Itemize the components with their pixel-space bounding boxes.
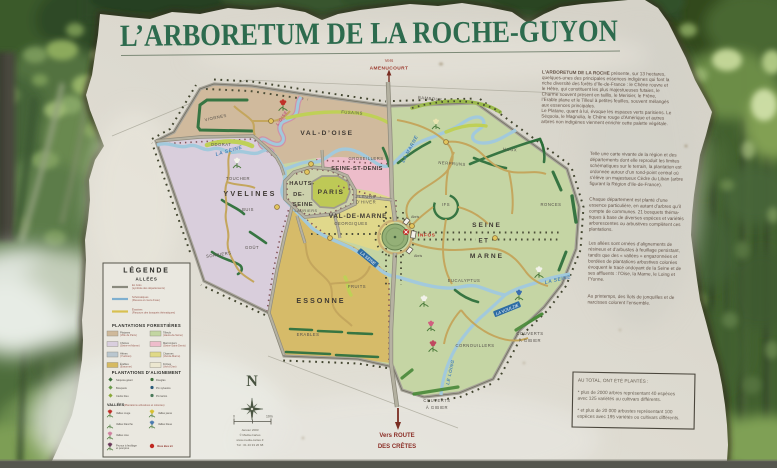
svg-text:Abris: Abris bbox=[414, 254, 422, 258]
svg-text:INFOS: INFOS bbox=[418, 233, 436, 238]
svg-text:GROSEILLERS: GROSEILLERS bbox=[348, 156, 383, 161]
svg-text:5: 5 bbox=[251, 415, 253, 419]
svg-text:Vallée bleue: Vallée bleue bbox=[158, 422, 173, 426]
svg-text:(symbole des départements): (symbole des départements) bbox=[132, 286, 165, 290]
svg-text:ALLÉES: ALLÉES bbox=[135, 277, 157, 282]
svg-text:À GIBIER: À GIBIER bbox=[519, 338, 541, 343]
svg-text:ESSONNE: ESSONNE bbox=[296, 296, 345, 305]
svg-text:Vers: Vers bbox=[385, 58, 393, 63]
svg-text:www.media-cartes.fr: www.media-cartes.fr bbox=[236, 438, 263, 442]
svg-text:(Fleuves et cours d’eau): (Fleuves et cours d’eau) bbox=[132, 298, 160, 302]
svg-text:LÉGENDE: LÉGENDE bbox=[123, 266, 169, 275]
svg-text:SEINE: SEINE bbox=[472, 222, 502, 229]
svg-text:SEINE-ST-DENIS: SEINE-ST-DENIS bbox=[331, 166, 383, 172]
svg-text:GEORGIQUES: GEORGIQUES bbox=[334, 221, 368, 226]
svg-text:10m: 10m bbox=[266, 415, 273, 419]
svg-text:Cèdre bleu: Cèdre bleu bbox=[116, 394, 129, 398]
svg-text:Tél : 01 43 33 26 68: Tél : 01 43 33 26 68 bbox=[237, 443, 264, 447]
svg-text:VAL-D’OISE: VAL-D’OISE bbox=[300, 130, 353, 137]
svg-text:(Parcours des bosquets thémati: (Parcours des bosquets thématiques) bbox=[132, 311, 175, 315]
svg-text:À GIBIER: À GIBIER bbox=[426, 405, 448, 410]
svg-text:ERABLES: ERABLES bbox=[297, 332, 320, 337]
svg-text:RONCES: RONCES bbox=[541, 202, 562, 207]
svg-text:SEINE: SEINE bbox=[293, 202, 313, 208]
svg-text:plantations.: plantations. bbox=[589, 226, 613, 231]
svg-text:D’HIVER: D’HIVER bbox=[356, 200, 376, 205]
svg-text:HOUX: HOUX bbox=[503, 147, 517, 153]
svg-text:(Seine-Saint-Denis): (Seine-Saint-Denis) bbox=[163, 344, 186, 348]
svg-text:(Yvelines): (Yvelines) bbox=[120, 354, 132, 358]
svg-text:EUCALYPTUS: EUCALYPTUS bbox=[448, 278, 481, 283]
svg-text:CORNOUILLERS: CORNOUILLERS bbox=[455, 343, 494, 348]
svg-text:PLANTATIONS FORESTIÈRES: PLANTATIONS FORESTIÈRES bbox=[112, 323, 181, 328]
svg-text:© Média-Cartes: © Média-Cartes bbox=[239, 433, 261, 437]
svg-text:Vallée jaune: Vallée jaune bbox=[158, 411, 173, 415]
svg-text:VALLÉES: VALLÉES bbox=[107, 402, 125, 407]
svg-text:(Ville de Paris): (Ville de Paris) bbox=[120, 333, 137, 337]
svg-text:Abris: Abris bbox=[411, 215, 419, 219]
svg-text:IFS: IFS bbox=[442, 202, 450, 207]
svg-text:LAURIERS: LAURIERS bbox=[295, 209, 318, 213]
svg-text:Janvier 2003: Janvier 2003 bbox=[241, 428, 259, 432]
svg-text:Bosquets: Bosquets bbox=[116, 386, 128, 390]
svg-text:ET: ET bbox=[479, 238, 490, 245]
svg-text:MARNE: MARNE bbox=[470, 253, 504, 260]
svg-text:FRUITS: FRUITS bbox=[348, 284, 366, 289]
svg-text:Vallée blanche: Vallée blanche bbox=[116, 422, 133, 426]
svg-text:TOUCHER: TOUCHER bbox=[226, 176, 250, 181]
svg-text:Vallée rouge: Vallée rouge bbox=[116, 411, 131, 415]
svg-text:AU TOTAL, ONT ÉTÉ PLANTÉS :: AU TOTAL, ONT ÉTÉ PLANTÉS : bbox=[578, 377, 649, 384]
svg-text:Douglas: Douglas bbox=[156, 378, 166, 382]
svg-text:HAUTS-: HAUTS- bbox=[289, 181, 315, 187]
svg-text:Vallée rose: Vallée rose bbox=[116, 433, 129, 437]
svg-text:YVELINES: YVELINES bbox=[223, 189, 276, 198]
svg-text:GOÛT: GOÛT bbox=[245, 245, 259, 250]
svg-text:PLANTATIONS D’ALIGNEMENT: PLANTATIONS D’ALIGNEMENT bbox=[112, 370, 182, 375]
svg-text:(Val-d’Oise): (Val-d’Oise) bbox=[163, 365, 177, 369]
svg-text:DES CRÊTES: DES CRÊTES bbox=[378, 442, 416, 450]
svg-text:Séquoia géant: Séquoia géant bbox=[116, 378, 133, 382]
svg-text:(Plantations arbustives et col: (Plantations arbustives et colorées) bbox=[124, 403, 165, 407]
svg-text:(Essonne): (Essonne) bbox=[120, 365, 132, 369]
svg-text:VAL-DE-MARNE: VAL-DE-MARNE bbox=[329, 213, 387, 220]
svg-text:Pin sylvestre: Pin sylvestre bbox=[156, 386, 171, 390]
svg-text:COUVERTS: COUVERTS bbox=[516, 331, 543, 336]
svg-text:COUVERTS: COUVERTS bbox=[423, 398, 450, 403]
svg-text:(Seine-et-Marne): (Seine-et-Marne) bbox=[120, 344, 140, 348]
svg-text:Vous êtes ici: Vous êtes ici bbox=[157, 444, 173, 448]
svg-text:BUIS: BUIS bbox=[242, 207, 254, 212]
svg-text:ODORAT: ODORAT bbox=[211, 142, 232, 147]
svg-text:l’Yonne.: l’Yonne. bbox=[588, 276, 605, 281]
svg-text:L’ARBORETUM DE LA ROCHE-GUYON: L’ARBORETUM DE LA ROCHE-GUYON bbox=[120, 13, 618, 53]
svg-text:et pourpres: et pourpres bbox=[116, 446, 130, 450]
svg-text:DE-: DE- bbox=[293, 192, 305, 198]
svg-text:Vers ROUTE: Vers ROUTE bbox=[379, 433, 414, 439]
svg-text:0: 0 bbox=[233, 415, 235, 419]
svg-text:Pin laricio: Pin laricio bbox=[156, 394, 168, 398]
svg-text:(Val-de-Marne): (Val-de-Marne) bbox=[163, 354, 180, 358]
svg-text:PARIS: PARIS bbox=[318, 189, 345, 196]
svg-text:N: N bbox=[246, 373, 258, 390]
svg-text:(Hauts-de-Seine): (Hauts-de-Seine) bbox=[163, 333, 183, 337]
svg-text:FLEURS: FLEURS bbox=[356, 194, 376, 199]
